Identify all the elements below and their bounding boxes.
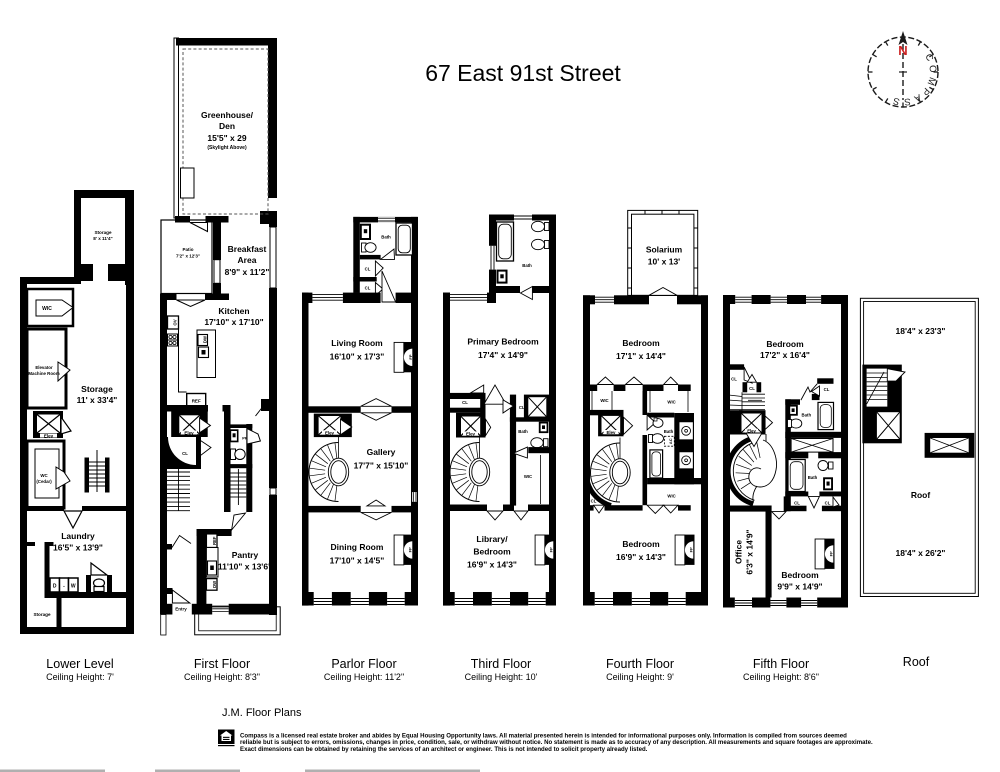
svg-text:67 East 91st Street: 67 East 91st Street <box>425 60 621 86</box>
svg-text:Elevator: Elevator <box>35 365 53 370</box>
svg-text:PR: PR <box>242 436 248 441</box>
svg-text:18'4" x 23'3": 18'4" x 23'3" <box>896 326 946 336</box>
svg-text:CL: CL <box>825 501 831 506</box>
svg-text:Bath: Bath <box>381 235 391 240</box>
svg-text:Elev: Elev <box>466 432 476 437</box>
svg-text:Pantry: Pantry <box>232 550 259 560</box>
svg-text:Ceiling Height: 7': Ceiling Height: 7' <box>46 672 114 682</box>
svg-text:Storage: Storage <box>94 230 112 235</box>
svg-text:WIC: WIC <box>524 474 532 479</box>
svg-text:WC: WC <box>40 473 48 478</box>
svg-text:Lower Level: Lower Level <box>46 657 113 671</box>
svg-text:Gallery: Gallery <box>367 447 396 457</box>
svg-text:CL: CL <box>365 286 371 291</box>
svg-text:Bath: Bath <box>808 475 818 480</box>
svg-text:AC: AC <box>668 438 673 444</box>
svg-text:Elev: Elev <box>44 434 54 439</box>
svg-text:18'4" x 26'2": 18'4" x 26'2" <box>896 548 946 558</box>
svg-text:Solarium: Solarium <box>646 245 683 255</box>
svg-text:Bath: Bath <box>802 413 812 418</box>
svg-text:Primary Bedroom: Primary Bedroom <box>467 337 539 347</box>
svg-text:17'1" x 14'4": 17'1" x 14'4" <box>616 351 666 361</box>
svg-text:WIC: WIC <box>667 494 675 499</box>
svg-text:First Floor: First Floor <box>194 657 250 671</box>
svg-text:DW: DW <box>203 335 208 343</box>
svg-text:CL: CL <box>182 451 188 456</box>
svg-text:Area: Area <box>238 255 257 265</box>
svg-text:Storage: Storage <box>33 612 51 617</box>
svg-text:Dining Room: Dining Room <box>331 542 384 552</box>
svg-text:DW: DW <box>212 581 217 588</box>
svg-text:FP: FP <box>689 547 694 552</box>
svg-text:N: N <box>898 43 907 58</box>
svg-text:17'7" x 15'10": 17'7" x 15'10" <box>354 461 409 471</box>
svg-text:WIC: WIC <box>667 400 675 405</box>
svg-text:CL: CL <box>749 386 755 391</box>
svg-text:CL: CL <box>824 387 830 392</box>
svg-text:Bath: Bath <box>664 429 674 434</box>
svg-text:8'9" x 11'2": 8'9" x 11'2" <box>225 267 270 277</box>
svg-text:Machine Room: Machine Room <box>28 371 59 376</box>
svg-text:Roof: Roof <box>903 655 930 669</box>
svg-text:11'10" x 13'6": 11'10" x 13'6" <box>218 562 272 572</box>
svg-text:J.M. Floor Plans: J.M. Floor Plans <box>222 707 302 719</box>
svg-text:REF: REF <box>212 536 217 545</box>
svg-text:Elev: Elev <box>325 430 335 435</box>
svg-text:D: D <box>53 584 57 590</box>
svg-text:Laundry: Laundry <box>61 531 95 541</box>
svg-text:Roof: Roof <box>911 490 931 500</box>
svg-text:Parlor Floor: Parlor Floor <box>331 657 396 671</box>
svg-text:CL: CL <box>591 499 597 504</box>
svg-text:17'10" x 14'5": 17'10" x 14'5" <box>330 556 385 566</box>
svg-text:Patio: Patio <box>182 247 193 252</box>
svg-text:OV: OV <box>173 319 178 325</box>
svg-text:17'2" x 16'4": 17'2" x 16'4" <box>760 350 810 360</box>
svg-text:17'4" x 14'9": 17'4" x 14'9" <box>478 350 528 360</box>
svg-text:(Skylight Above): (Skylight Above) <box>207 145 247 151</box>
svg-text:Bedroom: Bedroom <box>622 539 660 549</box>
svg-text:FP: FP <box>408 547 413 552</box>
svg-text:Bath: Bath <box>522 263 532 268</box>
svg-text:9'9" x 14'9": 9'9" x 14'9" <box>777 582 822 592</box>
svg-text:6'3" x 14'9": 6'3" x 14'9" <box>745 529 755 574</box>
svg-text:Library/: Library/ <box>476 534 508 544</box>
svg-text:FP: FP <box>549 547 554 552</box>
svg-text:16'10" x 17'3": 16'10" x 17'3" <box>330 352 385 362</box>
svg-text:8' x 11'4": 8' x 11'4" <box>93 236 112 241</box>
svg-text:Elev: Elev <box>606 430 616 435</box>
svg-text:Exact dimensions can be obtain: Exact dimensions can be obtained by reta… <box>240 746 648 753</box>
svg-text:CL: CL <box>794 501 800 506</box>
svg-text:FP: FP <box>829 551 834 556</box>
svg-text:Fourth Floor: Fourth Floor <box>606 657 674 671</box>
svg-text:16'9" x 14'3": 16'9" x 14'3" <box>616 552 666 562</box>
svg-text:Storage: Storage <box>81 384 113 394</box>
svg-text:17'10" x 17'10": 17'10" x 17'10" <box>204 317 263 327</box>
svg-text:Fifth Floor: Fifth Floor <box>753 657 809 671</box>
svg-text:Bath: Bath <box>518 429 528 434</box>
svg-text:Ceiling Height: 10': Ceiling Height: 10' <box>465 672 538 682</box>
svg-text:Living Room: Living Room <box>331 338 383 348</box>
svg-text:Bedroom: Bedroom <box>622 338 660 348</box>
svg-text:W: W <box>71 584 76 590</box>
svg-text:Ceiling Height: 9': Ceiling Height: 9' <box>606 672 674 682</box>
svg-text:Ceiling Height: 8'3": Ceiling Height: 8'3" <box>184 672 260 682</box>
svg-text:11' x 33'4": 11' x 33'4" <box>77 395 118 405</box>
svg-text:COMPASS: COMPASS <box>888 52 938 107</box>
svg-text:Office: Office <box>734 540 744 564</box>
svg-text:FP: FP <box>408 354 413 359</box>
svg-text:Breakfast: Breakfast <box>228 244 267 254</box>
svg-text:Bedroom: Bedroom <box>781 570 819 580</box>
svg-text:10' x 13': 10' x 13' <box>648 257 680 267</box>
svg-text:Elev: Elev <box>184 431 194 436</box>
svg-text:7'2" x 12'3": 7'2" x 12'3" <box>176 254 200 259</box>
svg-text:Greenhouse/: Greenhouse/ <box>201 110 254 120</box>
svg-text:CL: CL <box>365 267 371 272</box>
svg-text:Ceiling Height: 8'6": Ceiling Height: 8'6" <box>743 672 819 682</box>
svg-text:Kitchen: Kitchen <box>218 306 249 316</box>
svg-text:Den: Den <box>219 121 235 131</box>
svg-text:Ceiling Height: 11'2": Ceiling Height: 11'2" <box>324 672 404 682</box>
svg-text:16'5" x 13'9": 16'5" x 13'9" <box>53 543 103 553</box>
svg-text:WIC: WIC <box>600 398 608 403</box>
svg-text:Bedroom: Bedroom <box>473 547 511 557</box>
svg-text:15'5" x 29: 15'5" x 29 <box>207 133 246 143</box>
svg-text:Bedroom: Bedroom <box>766 339 804 349</box>
svg-text:CL: CL <box>731 377 737 382</box>
svg-text:16'9" x 14'3": 16'9" x 14'3" <box>467 560 517 570</box>
svg-text:Third Floor: Third Floor <box>471 657 531 671</box>
svg-text:WIC: WIC <box>42 306 52 312</box>
svg-text:(Cedar): (Cedar) <box>36 479 52 484</box>
svg-text:Entry: Entry <box>175 607 187 612</box>
svg-text:CL: CL <box>462 400 468 405</box>
svg-text:REF: REF <box>192 399 201 404</box>
